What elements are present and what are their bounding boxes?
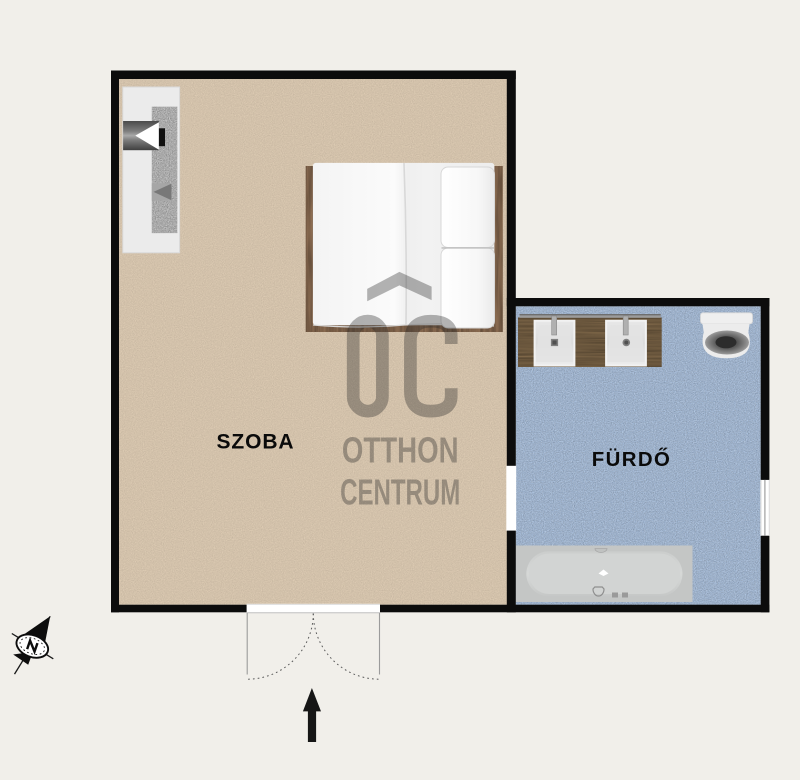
svg-text:OTTHON: OTTHON <box>342 430 459 471</box>
svg-text:SZOBA: SZOBA <box>217 430 295 453</box>
svg-text:FÜRDŐ: FÜRDŐ <box>592 448 672 471</box>
svg-text:CENTRUM: CENTRUM <box>340 471 460 512</box>
